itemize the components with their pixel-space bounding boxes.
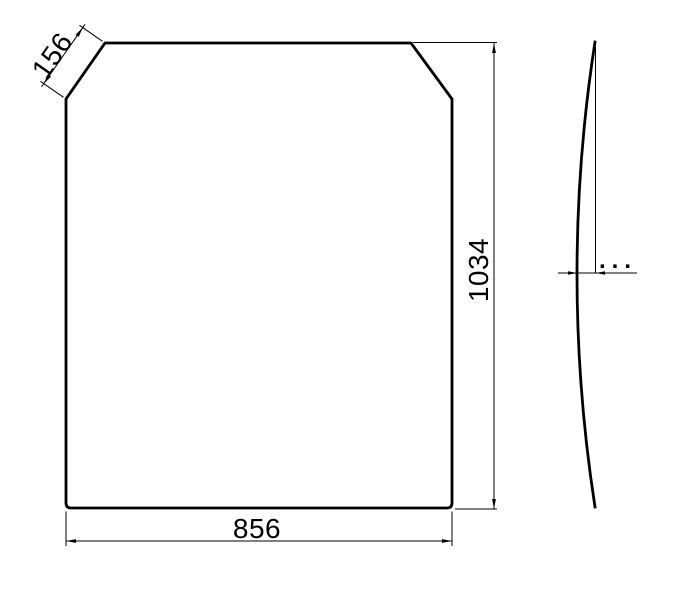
side-profile-curve [577, 42, 595, 507]
height-arrow-top [492, 43, 496, 53]
height-arrow-bottom [492, 499, 496, 509]
front-view: 856 1034 156 [26, 24, 497, 546]
technical-drawing-canvas: 856 1034 156 [0, 0, 681, 594]
dimension-height: 1034 [413, 43, 497, 510]
width-arrow-right [442, 539, 452, 543]
bow-dimension-text: ... [599, 247, 637, 274]
dimension-width: 856 [66, 512, 452, 547]
chamfer-arrow-upper [76, 28, 83, 37]
height-dimension-text: 1034 [463, 238, 494, 302]
panel-outline [66, 43, 452, 508]
chamfer-dimension-text: 156 [26, 27, 79, 84]
width-dimension-text: 856 [233, 513, 281, 544]
side-view: ... [558, 42, 637, 507]
width-arrow-left [66, 539, 76, 543]
dimension-bow: ... [558, 247, 637, 275]
drawing-page: 856 1034 156 [0, 0, 681, 594]
